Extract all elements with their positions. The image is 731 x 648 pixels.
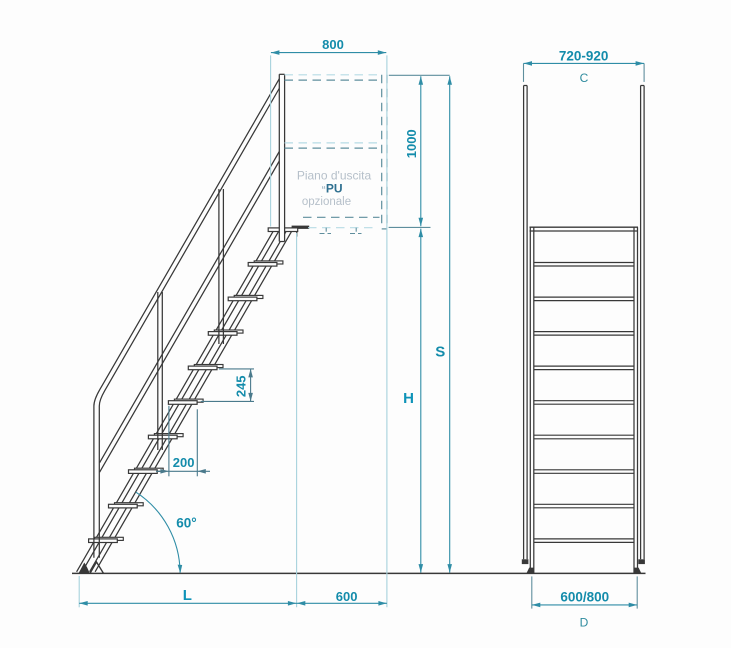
svg-text:1000: 1000	[404, 129, 419, 158]
svg-text:opzionale: opzionale	[302, 196, 351, 208]
svg-text:L: L	[183, 587, 192, 604]
svg-text:H: H	[403, 390, 414, 407]
svg-text:600/800: 600/800	[560, 590, 609, 605]
svg-text:C: C	[580, 71, 589, 85]
svg-text:S: S	[435, 344, 445, 361]
svg-text:60°: 60°	[176, 516, 196, 531]
svg-text:“PU: “PU	[321, 181, 342, 195]
svg-text:800: 800	[322, 37, 344, 52]
svg-text:600: 600	[336, 589, 358, 604]
svg-text:720-920: 720-920	[559, 48, 609, 63]
svg-text:D: D	[580, 616, 589, 630]
svg-text:200: 200	[173, 455, 195, 470]
svg-text:245: 245	[233, 375, 248, 397]
